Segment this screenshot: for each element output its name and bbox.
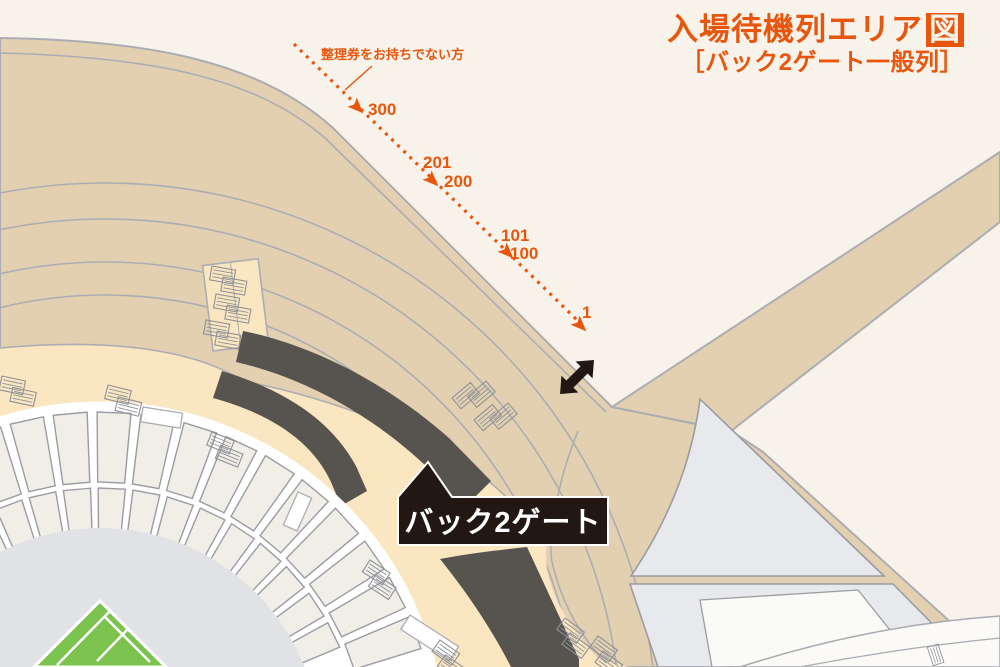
queue-marker-100: 100 bbox=[510, 244, 538, 264]
seat-block bbox=[97, 412, 131, 483]
queue-marker-101: 101 bbox=[501, 226, 529, 246]
queue-marker-300: 300 bbox=[368, 100, 396, 120]
title-boxed-char: 図 bbox=[926, 13, 964, 47]
map-canvas: バック2ゲート bbox=[0, 0, 1000, 667]
map-title-block: 入場待機列エリア図 ［バック2ゲート一般列］ bbox=[0, 13, 964, 76]
queue-marker-201: 201 bbox=[423, 153, 451, 173]
queue-note: 整理券をお持ちでない方 bbox=[321, 44, 464, 63]
title-text: 入場待機列エリア bbox=[667, 12, 923, 47]
page-title: 入場待機列エリア図 bbox=[0, 13, 964, 47]
stadium-entrance-map: バック2ゲート 入場待機列エリア図 ［バック2ゲート一般列］ 整理券をお持ちでな… bbox=[0, 0, 1000, 667]
queue-marker-1: 1 bbox=[582, 303, 591, 323]
queue-marker-200: 200 bbox=[444, 172, 472, 192]
gate-label: バック2ゲート bbox=[404, 506, 601, 539]
page-subtitle: ［バック2ゲート一般列］ bbox=[0, 50, 964, 76]
